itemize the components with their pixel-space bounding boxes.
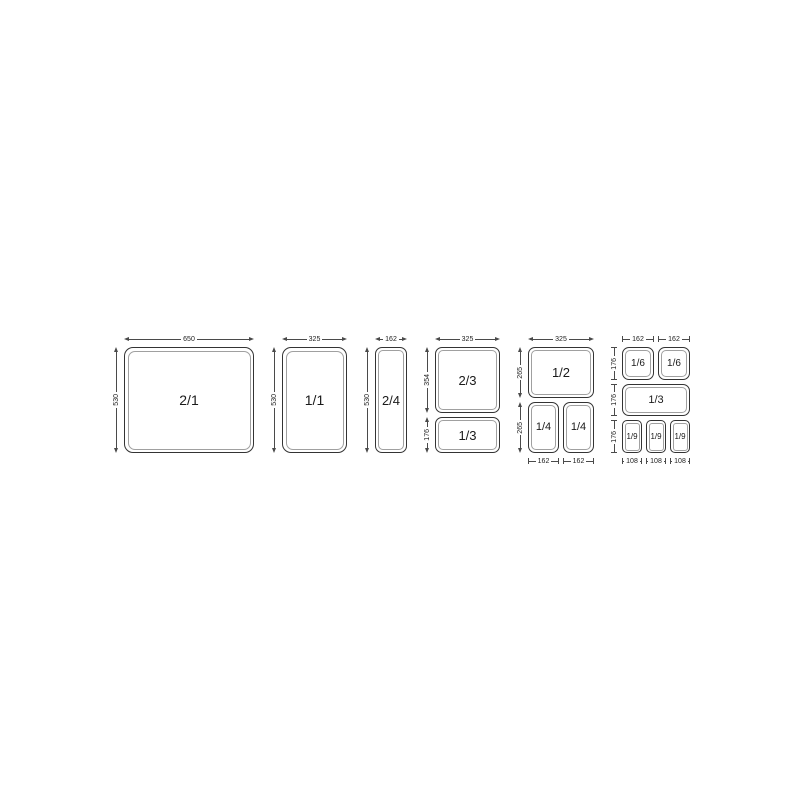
- pan-1-6-right: 1/6: [658, 347, 690, 380]
- height-dimension-176: 176: [421, 417, 433, 453]
- dimension-label: 265: [517, 365, 524, 381]
- pan-label: 2/4: [382, 394, 400, 407]
- group-gn-1-6-1-3-1-9: 162 162 176 176: [608, 334, 690, 466]
- width-dimension-325: 325: [435, 334, 500, 344]
- pan-1-4-left: 1/4: [528, 402, 559, 453]
- pan-label: 1/6: [667, 359, 681, 369]
- tick-icon: [641, 458, 642, 464]
- dimension-label: 650: [181, 336, 197, 343]
- pan-2-4: 2/4: [375, 347, 407, 453]
- dimension-label: 176: [424, 427, 431, 443]
- pan-label: 1/9: [650, 433, 661, 441]
- width-dimension-108: 108: [646, 456, 666, 466]
- width-dimension-650: 650: [124, 334, 254, 344]
- tick-icon: [611, 379, 617, 380]
- width-dimension-325: 325: [282, 334, 347, 344]
- height-dimension-265: 265: [514, 402, 526, 453]
- height-dimension-530: 530: [361, 347, 373, 453]
- width-dimension-162: 162: [528, 456, 559, 466]
- arrow-right-icon: [402, 337, 407, 341]
- width-dimension-325: 325: [528, 334, 594, 344]
- dimension-label: 530: [364, 392, 371, 408]
- dimension-label: 162: [630, 336, 646, 343]
- gastronorm-size-diagram: 650 530 2/1: [110, 334, 690, 466]
- dimension-label: 108: [648, 458, 664, 465]
- tick-icon: [593, 458, 594, 464]
- dimension-label: 162: [536, 458, 552, 465]
- width-dimension-162: 162: [563, 456, 594, 466]
- pan-label: 1/4: [571, 422, 586, 433]
- arrow-down-icon: [114, 448, 118, 453]
- height-dimension-176: 176: [608, 384, 620, 416]
- dimension-label: 176: [611, 356, 618, 372]
- tick-icon: [665, 458, 666, 464]
- dimension-label: 162: [666, 336, 682, 343]
- pan-1-1: 1/1: [282, 347, 347, 453]
- group-gn-2-3-1-3: 325 354 176: [421, 334, 500, 453]
- arrow-down-icon: [518, 393, 522, 398]
- arrow-down-icon: [425, 408, 429, 413]
- pan-1-3: 1/3: [435, 417, 500, 453]
- dimension-label: 108: [624, 458, 640, 465]
- tick-icon: [611, 452, 617, 453]
- pan-1-4-right: 1/4: [563, 402, 594, 453]
- pan-label: 1/6: [631, 359, 645, 369]
- height-dimension-530: 530: [268, 347, 280, 453]
- tick-icon: [558, 458, 559, 464]
- height-dimension-530: 530: [110, 347, 122, 453]
- height-dimension-265: 265: [514, 347, 526, 398]
- pan-label: 1/3: [648, 395, 663, 406]
- pan-label: 1/9: [674, 433, 685, 441]
- arrow-down-icon: [518, 448, 522, 453]
- dimension-label: 162: [571, 458, 587, 465]
- dimension-label: 530: [113, 392, 120, 408]
- arrow-right-icon: [249, 337, 254, 341]
- tick-icon: [689, 336, 690, 342]
- pan-1-3-wide: 1/3: [622, 384, 690, 416]
- pan-label: 2/1: [179, 393, 198, 407]
- arrow-down-icon: [272, 448, 276, 453]
- dimension-label: 530: [271, 392, 278, 408]
- pan-2-3: 2/3: [435, 347, 500, 413]
- dimension-label: 176: [611, 429, 618, 445]
- width-dimension-162: 162: [658, 334, 690, 344]
- tick-icon: [689, 458, 690, 464]
- pan-label: 1/9: [626, 433, 637, 441]
- dimension-label: 108: [672, 458, 688, 465]
- width-dimension-162: 162: [375, 334, 407, 344]
- dimension-label: 325: [460, 336, 476, 343]
- dimension-label: 265: [517, 420, 524, 436]
- arrow-right-icon: [589, 337, 594, 341]
- dimension-label: 354: [424, 372, 431, 388]
- pan-1-2: 1/2: [528, 347, 594, 398]
- group-gn-2-4: 162 530 2/4: [361, 334, 407, 453]
- group-gn-1-1: 325 530 1/1: [268, 334, 347, 453]
- arrow-down-icon: [425, 448, 429, 453]
- width-dimension-108: 108: [670, 456, 690, 466]
- arrow-down-icon: [365, 448, 369, 453]
- height-dimension-176: 176: [608, 420, 620, 453]
- pan-1-9-second: 1/9: [646, 420, 666, 453]
- pan-label: 1/1: [305, 393, 324, 407]
- pan-label: 1/4: [536, 422, 551, 433]
- arrow-right-icon: [342, 337, 347, 341]
- arrow-right-icon: [495, 337, 500, 341]
- pan-2-1: 2/1: [124, 347, 254, 453]
- pan-label: 2/3: [458, 374, 476, 387]
- group-gn-2-1: 650 530 2/1: [110, 334, 254, 453]
- dimension-label: 162: [383, 336, 399, 343]
- pan-label: 1/3: [458, 429, 476, 442]
- pan-1-9-third: 1/9: [670, 420, 690, 453]
- dimension-label: 325: [553, 336, 569, 343]
- group-gn-1-2-1-4: 325 265 265: [514, 334, 594, 466]
- pan-1-9-first: 1/9: [622, 420, 642, 453]
- pan-1-6-left: 1/6: [622, 347, 654, 380]
- height-dimension-354: 354: [421, 347, 433, 413]
- height-dimension-176: 176: [608, 347, 620, 380]
- dimension-label: 325: [307, 336, 323, 343]
- tick-icon: [611, 415, 617, 416]
- width-dimension-108: 108: [622, 456, 642, 466]
- width-dimension-162: 162: [622, 334, 654, 344]
- dimension-label: 176: [611, 392, 618, 408]
- tick-icon: [653, 336, 654, 342]
- pan-label: 1/2: [552, 366, 570, 379]
